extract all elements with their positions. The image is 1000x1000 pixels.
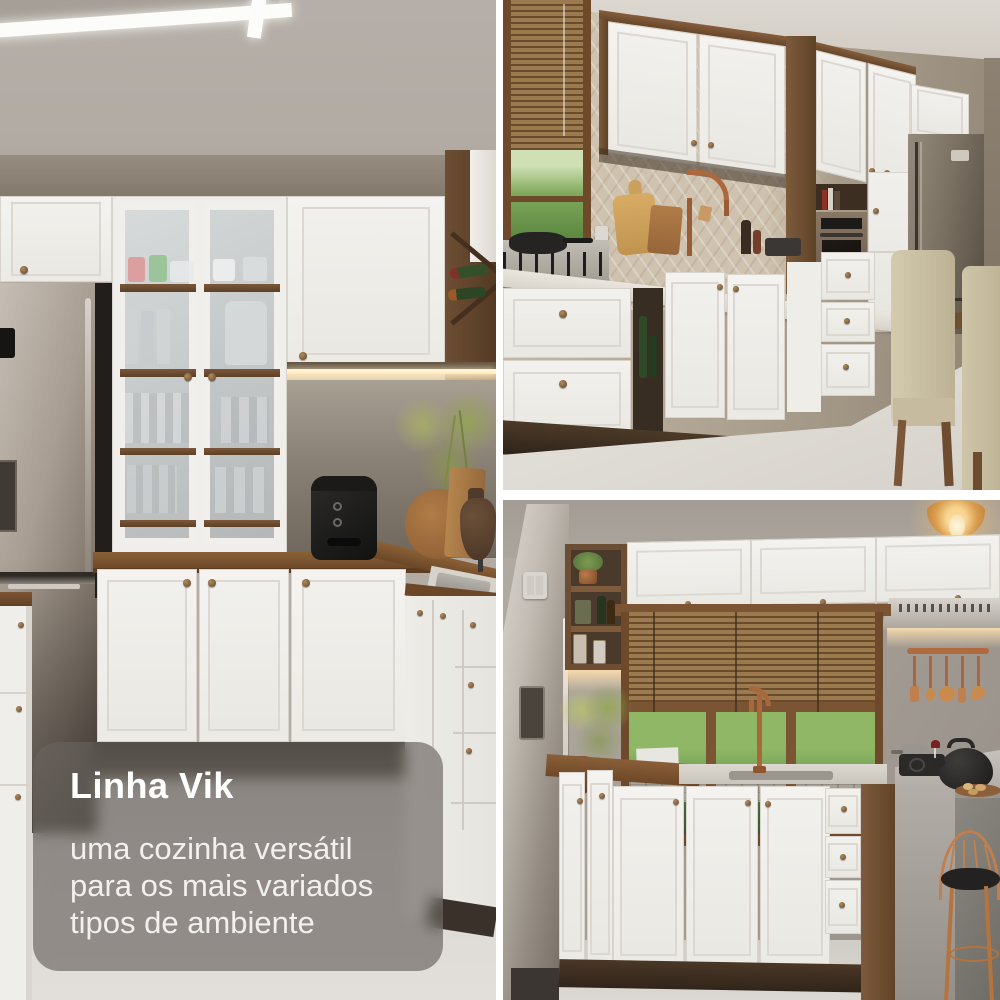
faucet-pipe — [757, 694, 762, 770]
cabinet-side-panel — [599, 18, 608, 155]
door-inner-frame — [760, 546, 866, 594]
cutting-board — [647, 205, 683, 256]
cabinet-knob — [765, 801, 771, 807]
pink-cup — [128, 257, 145, 282]
switch-rocker — [536, 576, 543, 595]
utensil-handle — [977, 656, 980, 686]
cabinet-knob — [691, 140, 697, 146]
cabinet-knob — [559, 310, 567, 318]
ladle — [972, 686, 985, 699]
faucet-spout — [724, 200, 729, 216]
copper-pot — [579, 570, 597, 584]
cabinet-knob — [733, 286, 739, 292]
shelf — [571, 626, 621, 632]
cabinet-filler — [787, 262, 821, 412]
bottle — [597, 596, 606, 624]
island-edge — [26, 606, 32, 1000]
chair-leg — [973, 452, 982, 490]
bottle — [607, 600, 615, 624]
cabinet-knob — [840, 854, 846, 860]
skimmer-disc — [939, 686, 955, 702]
cabinet-knob — [302, 579, 310, 587]
base-drawer — [503, 288, 631, 358]
cabinet-knob — [466, 748, 472, 754]
utensil-rail — [907, 648, 989, 654]
cabinet-knob — [845, 272, 851, 278]
refrigerator-display — [0, 328, 15, 358]
spoon — [926, 688, 935, 701]
island-drawers — [0, 606, 32, 1000]
air-fryer-dial — [333, 502, 342, 511]
air-fryer-lid — [311, 476, 377, 491]
drawer-seam — [451, 802, 496, 804]
glassware — [215, 467, 267, 513]
water-dispenser — [519, 686, 545, 740]
cabinet-knob — [440, 613, 446, 619]
cabinet-knob — [873, 208, 879, 214]
freezer-handle — [8, 584, 80, 589]
glass-jar — [573, 634, 587, 664]
light-switch — [523, 572, 547, 599]
hood-vents — [899, 604, 994, 612]
cabinet-knob — [468, 682, 474, 688]
cabinet-knob — [184, 373, 192, 381]
upper-cabinet-door — [608, 21, 697, 166]
refrigerator-handle — [85, 298, 91, 573]
promo-collage: Linha Vik uma cozinha versátil para os m… — [0, 0, 1000, 1000]
base-cabinet-door — [613, 786, 684, 968]
water-dispenser — [0, 460, 17, 532]
burner — [909, 758, 925, 772]
upper-cabinets — [627, 534, 1000, 608]
book — [834, 191, 840, 210]
faucet-spout — [749, 700, 754, 712]
fork — [958, 688, 966, 703]
wine-glass — [931, 740, 940, 748]
faucet-pipe — [687, 198, 692, 256]
door-inner-frame — [636, 549, 742, 597]
upper-cabinet-door — [0, 196, 112, 282]
spatula — [910, 686, 919, 702]
cabinet-knob — [599, 793, 605, 799]
cups — [213, 259, 235, 281]
glass-jug — [225, 301, 267, 365]
sink-basin — [729, 771, 833, 780]
cabinet-knob — [841, 806, 847, 812]
glass-jar — [593, 640, 606, 664]
drawer-seam — [453, 732, 496, 734]
wine-bottle — [741, 220, 751, 254]
book-nook — [816, 184, 867, 210]
cabinet-knob — [208, 373, 216, 381]
air-fryer-handle — [327, 538, 361, 546]
glassware — [157, 309, 170, 364]
base-cabinet-door — [291, 569, 406, 742]
tumblers — [221, 397, 269, 443]
refrigerator-side-gap — [95, 283, 112, 598]
dining-chair-back — [891, 250, 955, 422]
oven-handle — [820, 233, 863, 237]
cabinet-plinth — [559, 959, 885, 993]
base-cabinet-door — [97, 569, 197, 742]
drawer-seam — [0, 692, 30, 694]
greens — [575, 600, 591, 624]
window — [503, 0, 591, 262]
base-cabinet-door — [727, 274, 785, 420]
base-cabinet-door — [686, 786, 758, 968]
overlay-title: Linha Vik — [70, 766, 423, 806]
base-cabinet-door — [587, 770, 613, 968]
cabinet-knob — [20, 266, 28, 274]
drawer-seam — [455, 666, 496, 668]
refrigerator-display — [951, 150, 969, 161]
base-cabinet-door — [665, 272, 725, 418]
door-inner-frame — [885, 543, 991, 591]
overlay-subtitle-line: uma cozinha versátil — [70, 830, 423, 867]
cabinet-knob — [559, 380, 567, 388]
stool-seat — [941, 868, 1000, 890]
wall-cabinet-side-panel — [470, 150, 496, 262]
upper-cabinet-door — [816, 50, 866, 182]
window-blinds — [511, 0, 583, 150]
bottle — [639, 316, 647, 378]
switch-rocker — [527, 576, 534, 595]
drawer-seam — [0, 784, 30, 786]
cabinet-knob — [183, 579, 191, 587]
cabinet-knob — [417, 610, 423, 616]
utensil-handle — [913, 656, 916, 686]
succulent-plant — [573, 552, 603, 572]
pot — [765, 238, 801, 256]
glassware — [243, 257, 267, 281]
cabinet-knob — [717, 284, 723, 290]
cabinet-knob — [470, 622, 476, 628]
utensil-handle — [929, 656, 932, 688]
cabinet-knob — [839, 902, 845, 908]
cabinet-knob — [745, 800, 751, 806]
glassware — [141, 311, 154, 364]
cabinet-knob — [208, 579, 216, 587]
wine-glass-stem — [934, 748, 936, 758]
hood-light-glow — [887, 628, 1000, 648]
cookie — [968, 789, 978, 795]
window-mullion — [511, 196, 583, 202]
base-cabinet-door — [199, 569, 289, 742]
cabinet-knob — [843, 364, 849, 370]
cabinet-knob — [15, 794, 21, 800]
air-fryer-dial — [333, 518, 342, 527]
base-cabinet-door — [760, 786, 830, 968]
photo-kitchen-straight-run — [503, 0, 1000, 490]
glassware — [125, 309, 138, 364]
cabinet-knob — [299, 352, 307, 360]
cabinet-end-panel — [861, 784, 897, 1000]
air-fryer — [311, 476, 377, 560]
book — [828, 188, 833, 210]
cabinet-knob — [708, 142, 714, 148]
green-cup — [149, 255, 167, 282]
overlay-card: Linha Vik uma cozinha versátil para os m… — [33, 742, 443, 971]
blind-cord — [563, 4, 565, 136]
bottle — [649, 336, 657, 378]
glassware — [127, 465, 177, 513]
freezer-divider — [0, 572, 95, 584]
stool-footring — [949, 946, 999, 962]
range-hood — [881, 598, 1000, 630]
cabinet-knob — [16, 706, 22, 712]
door-seam — [750, 540, 752, 606]
saucepan-handle — [563, 238, 593, 243]
kettle-handle — [947, 738, 975, 748]
utensil-handle — [961, 656, 964, 688]
wine-glasses — [125, 393, 189, 443]
pepper-mill — [753, 230, 761, 254]
door-seam — [462, 610, 464, 830]
oven-control-panel — [821, 218, 862, 229]
shelf — [571, 586, 621, 592]
cabinet-knob — [673, 799, 679, 805]
base-drawer — [821, 344, 875, 396]
glass-hutch-cabinet — [112, 196, 287, 568]
cups — [170, 261, 194, 282]
plant — [555, 680, 631, 766]
cabinet-knob — [18, 622, 24, 628]
open-bottle-slot — [633, 288, 663, 438]
overlay-subtitle-line: para os mais variados — [70, 867, 423, 904]
utensil-handle — [945, 656, 948, 686]
upper-cabinet-door — [287, 196, 445, 366]
cabinet-knob — [577, 798, 583, 804]
upper-cabinet-door — [699, 34, 785, 178]
faucet-base — [753, 766, 766, 773]
hutch-center-stile — [196, 204, 204, 544]
cabinet-knob — [844, 318, 850, 324]
door-seam — [875, 538, 877, 604]
photo-kitchen-window-island — [503, 500, 1000, 1000]
photo-kitchen-hutch: Linha Vik uma cozinha versátil para os m… — [0, 0, 496, 1000]
saucepan — [509, 232, 567, 254]
book — [822, 190, 827, 210]
overlay-subtitle-line: tipos de ambiente — [70, 904, 423, 941]
